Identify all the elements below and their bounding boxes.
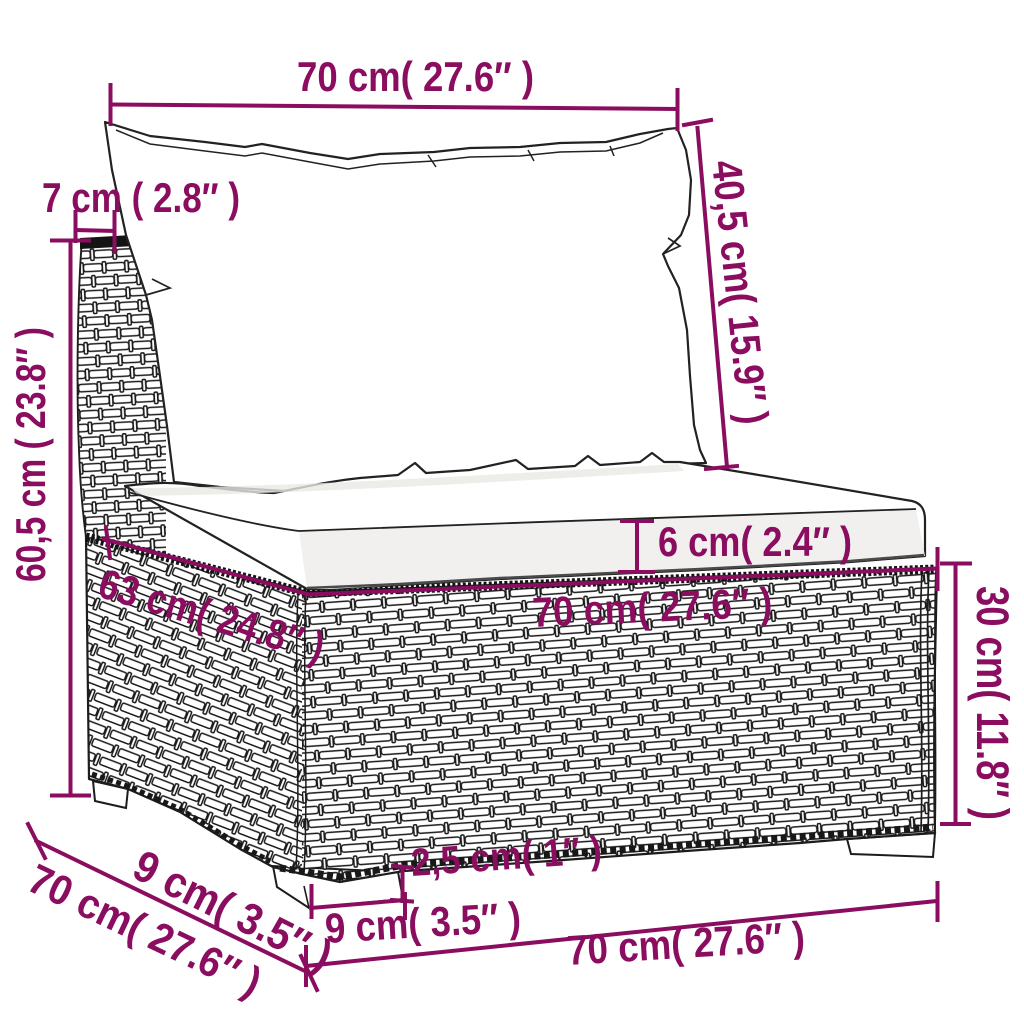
svg-text:70 cm( 27.6″ ): 70 cm( 27.6″ ) xyxy=(297,53,534,100)
svg-text:6 cm( 2.4″ ): 6 cm( 2.4″ ) xyxy=(658,518,852,565)
svg-text:30 cm( 11.8″ ): 30 cm( 11.8″ ) xyxy=(967,586,1018,820)
svg-text:60,5 cm ( 23.8″ ): 60,5 cm ( 23.8″ ) xyxy=(7,327,54,582)
svg-text:7 cm ( 2.8″ ): 7 cm ( 2.8″ ) xyxy=(42,174,240,221)
